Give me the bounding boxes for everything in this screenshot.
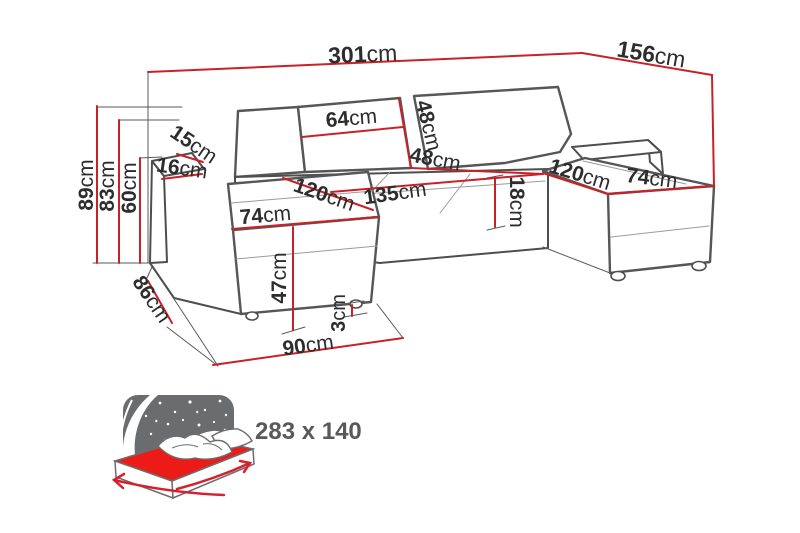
dim-label-total-height: 89cm xyxy=(75,159,98,210)
sofa-foot xyxy=(692,262,706,271)
dim-label-footprint-width: 90cm xyxy=(281,331,335,361)
dim-label-foot-height: 3cm xyxy=(328,294,350,332)
right-chaise-front xyxy=(608,186,714,273)
sofa-dimension-diagram: 301cm 156cm 89cm 83cm 60cm 15cm 16cm 64c… xyxy=(0,0,800,533)
dim-label-seat-height: 47cm xyxy=(268,252,291,303)
sofa-foot xyxy=(246,312,258,320)
dim-label-seat-thickness: 18cm xyxy=(505,176,528,227)
diagram-canvas: 301cm 156cm 89cm 83cm 60cm 15cm 16cm 64c… xyxy=(0,0,800,533)
sleeping-function-icon: 283 x 140 xyxy=(114,395,362,498)
back-cushion-left xyxy=(235,107,305,177)
dim-label-armrest-height: 83cm xyxy=(96,160,119,211)
dimension-labels: 301cm 156cm 89cm 83cm 60cm 15cm 16cm 64c… xyxy=(75,36,688,361)
dim-label-backrest-height: 60cm xyxy=(118,162,141,213)
dim-line-right-edge xyxy=(712,75,714,186)
sleeping-area-label: 283 x 140 xyxy=(255,418,362,445)
sofa-foot xyxy=(611,272,625,281)
dim-label-total-width: 301cm xyxy=(328,40,398,69)
dim-label-right-depth: 156cm xyxy=(615,36,687,73)
dim-label-ottoman-width: 74cm xyxy=(239,202,292,229)
dim-label-back-cushion-width: 64cm xyxy=(325,105,378,132)
